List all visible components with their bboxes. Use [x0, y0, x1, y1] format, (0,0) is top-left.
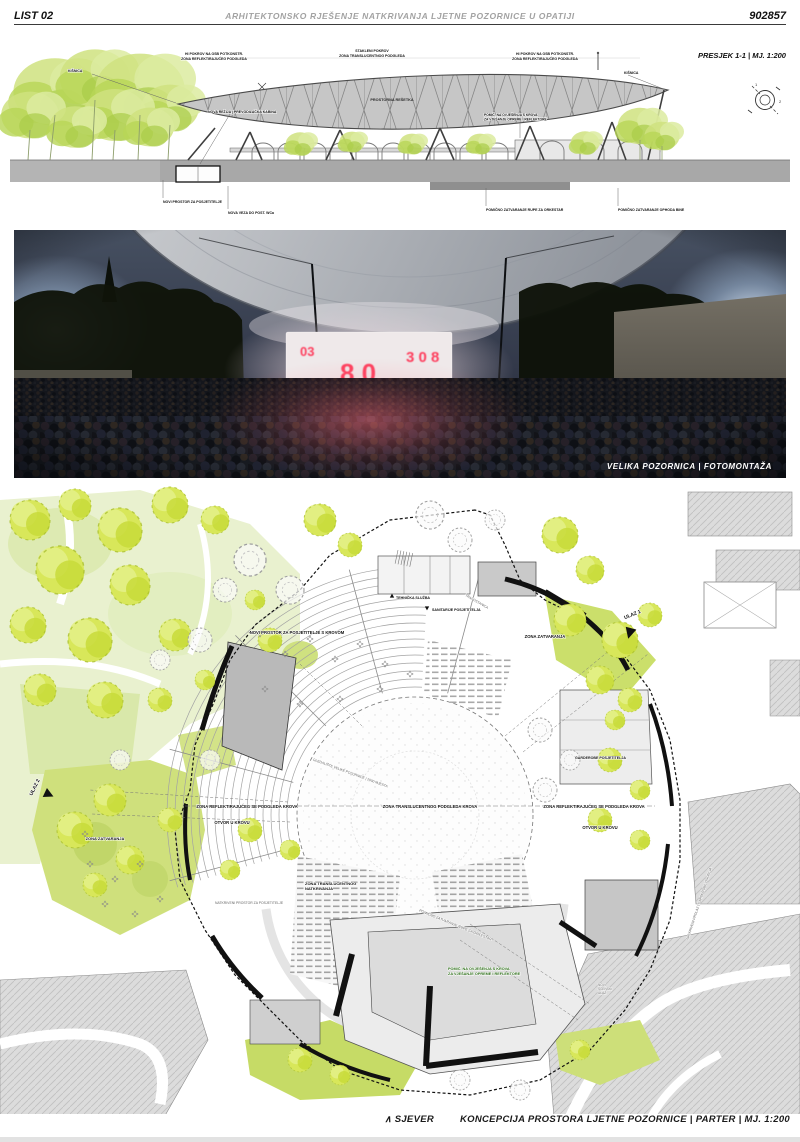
label-hoist-2: ZA VJEŠANJE OPREME I REFLEKTORE — [448, 971, 521, 976]
photo-vignette — [14, 230, 786, 478]
presentation-sheet: LIST 02 ARHITEKTONSKO RJEŠENJE NATKRIVAN… — [0, 0, 800, 1142]
competition-code: 902857 — [749, 10, 786, 22]
plan-caption: ∧ SJEVERKONCEPCIJA PROSTORA LJETNE POZOR… — [385, 1114, 790, 1125]
label-covered-space: NATKRIVENI PROSTOR ZA POSJETITELJE — [215, 901, 284, 905]
keyplan-mark-1: 1 — [755, 82, 758, 87]
sheet-header: LIST 02 ARHITEKTONSKO RJEŠENJE NATKRIVAN… — [14, 8, 786, 25]
section-caption: PRESJEK 1-1 | MJ. 1:200 — [698, 51, 787, 60]
label-wc-link: NOVA VEZA DO POST. WCa — [228, 211, 274, 215]
label-closure-zone-w: ZONA ZATVARANJA — [86, 836, 125, 841]
keyplan-mark-2: 2 — [779, 99, 782, 104]
label-roof-left-2: ZONA REFLEKTIRAJUĆEG PODGLEDA — [181, 56, 247, 61]
label-roof-center-1: STAKLENI POKROV — [355, 49, 389, 53]
label-closure-zone-ne: ZONA ZATVARANJA — [525, 634, 566, 639]
label-hoist-1: POMIČ. NA OVJEŠENJA S KROVA — [484, 112, 538, 117]
section-drawing: HI POKROV NA OSB POTKONSTR. ZONA REFLEKT… — [0, 30, 800, 230]
label-roof-center-2: ZONA TRANSLUCENTNOG PODGLEDA — [339, 54, 405, 58]
label-stage-closure: POMIČNO ZATVARANJE OPHODA BINE — [618, 207, 685, 212]
label-translucent-zone: ZONA TRANSLUCENTNOG PODGLEDA KROVA — [383, 804, 478, 809]
label-stage-entrance-3: ULAZ — [598, 991, 606, 995]
label-reflective-zone-e: ZONA REFLEKTIRAJUĆEG SE PODGLEDA KROVA — [543, 804, 644, 809]
keyplan-icon: 1 2 — [748, 82, 782, 114]
label-rainwater-right: KIŠNICA — [624, 70, 639, 75]
label-roof-right-1: HI POKROV NA OSB POTKONSTR. — [516, 52, 574, 56]
label-hoist-2: ZA VJEŠANJE OPREME I REFLEKTORE — [484, 117, 547, 122]
sheet-title: ARHITEKTONSKO RJEŠENJE NATKRIVANJA LJETN… — [14, 11, 786, 21]
label-new-visitor-space: NOVI PROSTOR ZA POSJETITELJE S KROVOM — [250, 630, 345, 635]
label-control-room: NOVA REŽIJA | PREVODILAČKA KABINA — [208, 109, 277, 114]
label-roof-right-2: ZONA REFLEKTIRAJUĆEG PODGLEDA — [512, 56, 578, 61]
label-orchestra-pit: POMIČNO ZATVARANJE RUPE ZA ORKESTAR — [486, 207, 564, 212]
north-indicator: ∧ SJEVER — [385, 1114, 434, 1125]
plan-caption-text: KONCEPCIJA PROSTORA LJETNE POZORNICE | P… — [460, 1114, 790, 1125]
photomontage: 03 8 0 3 0 8 8 8 0 3 8 VELIKA POZORNICA … — [14, 230, 786, 478]
photo-caption: VELIKA POZORNICA | FOTOMONTAŽA — [607, 462, 772, 471]
label-reflective-zone-w: ZONA REFLEKTIRAJUĆEG SE PODGLEDA KROVA — [196, 804, 297, 809]
label-cloakroom: GARDEROBE POSJETITELJA — [575, 756, 626, 760]
label-roof-opening-w: OTVOR U KROVU — [214, 820, 249, 825]
label-hoist-1: POMIČ. NA OVJEŠENJA S KROVA — [448, 966, 510, 971]
label-sanitary: SANITARIJE POSJETITELJA — [432, 608, 481, 612]
label-translucent-cover-2: NATKRIVANJA — [305, 886, 333, 891]
label-roof-left-1: HI POKROV NA OSB POTKONSTR. — [185, 52, 243, 56]
page-edge — [0, 1137, 800, 1142]
site-plan: ULAZ 1 ULAZ 2 TEHNIČKA SLUŽBA TRAFOSTANI… — [0, 484, 800, 1114]
label-technical: TEHNIČKA SLUŽBA — [396, 595, 430, 600]
section-trees-left — [0, 49, 206, 160]
label-truss: PROSTORNA REŠETKA — [370, 97, 414, 102]
label-new-space: NOVI PROSTOR ZA POSJETITELJE — [163, 200, 223, 204]
label-rainwater-left: KIŠNICA — [68, 68, 83, 73]
canopy-truss — [178, 52, 668, 129]
label-roof-opening-e: OTVOR U KROVU — [582, 825, 617, 830]
